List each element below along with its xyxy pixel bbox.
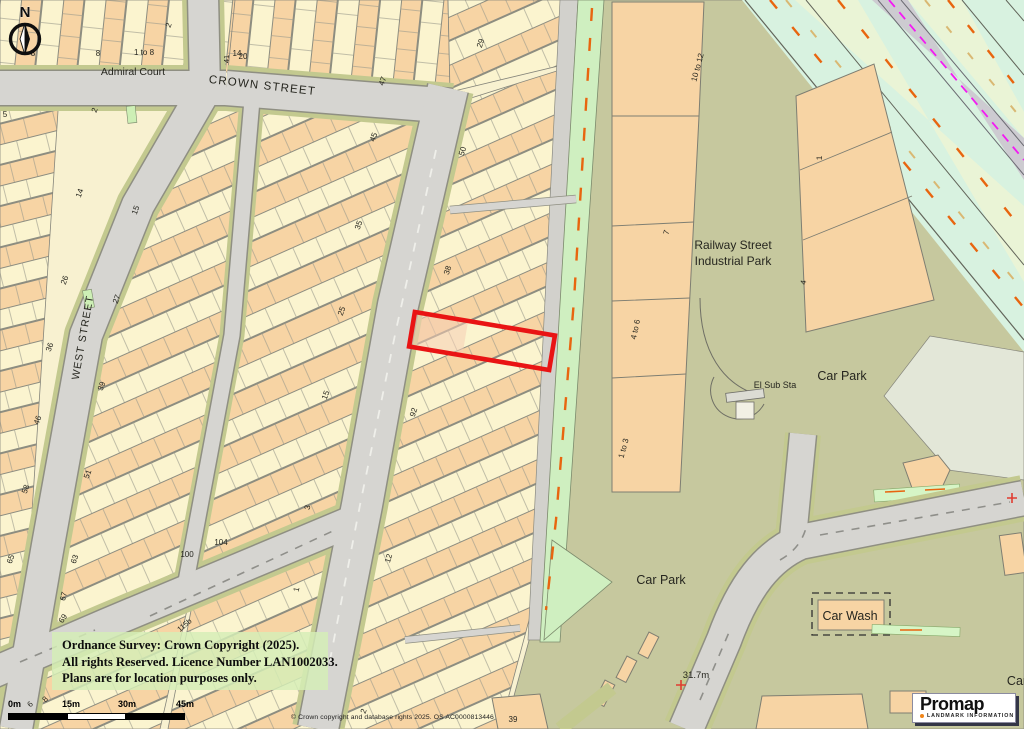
- map-label: Car Park: [817, 369, 867, 383]
- scale-bar: 0m 15m 30m 45m: [6, 699, 206, 725]
- promap-logo-name: Promap: [920, 695, 1015, 713]
- scale-segment: [126, 713, 185, 720]
- map-label: 100: [180, 550, 194, 559]
- map-label: 20: [239, 52, 248, 61]
- map-label: 8: [96, 49, 101, 58]
- map-label: Admiral Court: [101, 66, 165, 78]
- map-label: 39: [509, 715, 518, 724]
- map-label: Railway Street: [694, 238, 772, 252]
- copyright-notice: Ordnance Survey: Crown Copyright (2025).…: [52, 632, 328, 690]
- map-label: 41: [222, 55, 231, 63]
- landmark-dot-icon: [920, 714, 924, 718]
- map-label: 31.7m: [683, 670, 709, 681]
- map-label: 1 to 8: [134, 48, 155, 57]
- copyright-line: Ordnance Survey: Crown Copyright (2025).: [62, 637, 328, 654]
- compass-n-label: N: [20, 4, 31, 21]
- promap-logo: Promap LANDMARK INFORMATION: [912, 693, 1016, 723]
- scale-label: 0m: [8, 699, 21, 709]
- map-label: 5: [3, 110, 8, 119]
- scale-label: 30m: [118, 699, 136, 709]
- map-viewport[interactable]: Admiral CourtCROWN STREETWEST STREETRail…: [0, 0, 1024, 729]
- map-canvas: Admiral CourtCROWN STREETWEST STREETRail…: [0, 0, 1024, 729]
- copyright-line: Plans are for location purposes only.: [62, 670, 328, 687]
- north-arrow-icon: N: [2, 2, 50, 64]
- copyright-line: All rights Reserved. Licence Number LAN1…: [62, 654, 328, 671]
- map-label: Car Wash: [822, 609, 877, 623]
- map-label: 104: [214, 538, 228, 547]
- map-label: Car Park: [636, 573, 686, 587]
- scale-label: 15m: [62, 699, 80, 709]
- map-label: Industrial Park: [695, 254, 773, 268]
- scale-label: 45m: [176, 699, 194, 709]
- promap-logo-tagline: LANDMARK INFORMATION: [927, 713, 1014, 719]
- scale-segment: [67, 713, 126, 720]
- scale-segment: [8, 713, 67, 720]
- map-label: Car: [1007, 674, 1024, 688]
- map-label: El Sub Sta: [754, 380, 797, 390]
- os-attribution: © Crown copyright and database rights 20…: [291, 714, 494, 721]
